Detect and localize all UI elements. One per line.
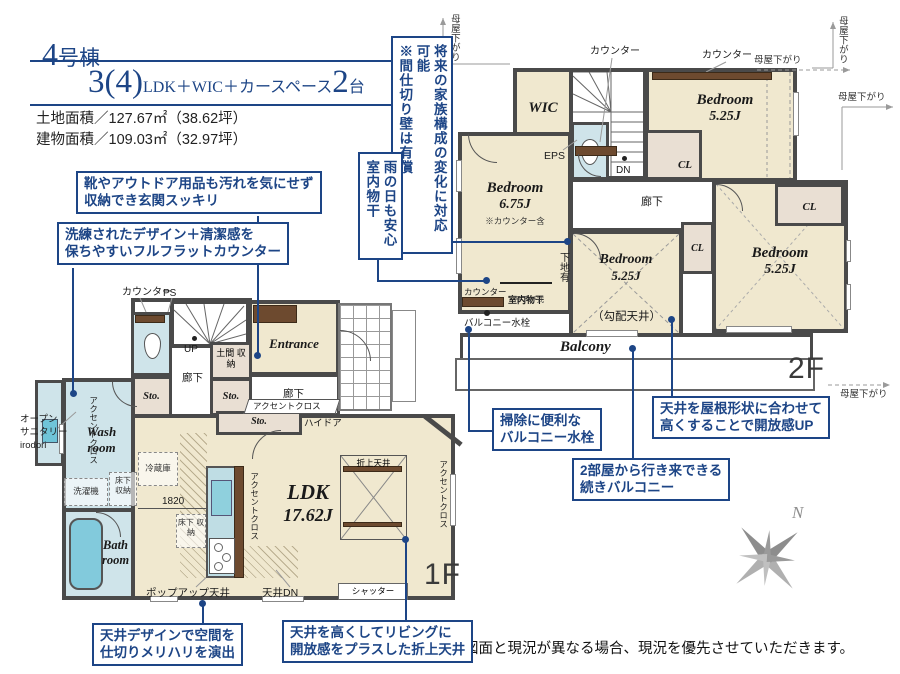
bedroom-w-label: Bedroom 6.75J ※カウンター含 — [462, 180, 568, 227]
sto3-label: Sto. — [219, 416, 299, 427]
fridge-box: 冷蔵庫 — [138, 452, 178, 486]
bedroom-w-name: Bedroom — [462, 180, 568, 197]
bedroom-w-size: 6.75J — [462, 197, 568, 213]
connector-rainy-dot — [483, 277, 490, 284]
floorplan-flyer: 4号棟 3(4)LDK＋WIC＋カースペース2台 土地面積／127.67㎡（38… — [0, 0, 900, 674]
monohoshi-rod — [500, 282, 552, 284]
washer-label: 洗濯機 — [65, 485, 107, 497]
eps-label: EPS — [544, 150, 565, 163]
stove-burner-3 — [214, 562, 223, 571]
connector-highceil — [671, 320, 673, 396]
stove-burner-1 — [214, 543, 223, 552]
bedroom-ne-label: Bedroom 5.25J — [660, 92, 790, 125]
bedroom-mid-label: Bedroom 5.25J — [575, 252, 677, 284]
accent2-label: アクセントクロス — [249, 472, 260, 540]
balcony-door-mid — [586, 330, 638, 337]
up-label: UP — [184, 344, 198, 357]
dim-1820: 1820 — [162, 496, 184, 509]
callout-continuous-balcony: 2部屋から行き来できる 続きバルコニー — [572, 458, 730, 501]
yukashita2-box: 床下 収納 — [176, 514, 206, 548]
counter-1f-toilet — [135, 315, 165, 323]
washer-box: 洗濯機 — [64, 478, 108, 506]
bedroom-w-note: ※カウンター含 — [462, 215, 568, 227]
room-1f-doma: 土間 収納 — [210, 342, 252, 380]
balcony-tap-dot — [484, 310, 490, 316]
connector-balcony2 — [632, 350, 634, 458]
moya-label-right: 母屋下がり — [838, 92, 886, 104]
connector-genkan-dot — [254, 352, 261, 359]
moya-label-tr: 母屋下がり — [836, 16, 848, 64]
room-2f-cl-ne: CL — [645, 130, 702, 180]
kitchen-cabinet — [234, 466, 244, 578]
sto2-label: Sto. — [213, 391, 249, 402]
bath-label: Bath room — [100, 538, 131, 568]
kitchen-stove — [209, 538, 235, 574]
sto1-label: Sto. — [134, 391, 169, 402]
yukashita2-label: 床下 収納 — [177, 518, 205, 537]
callout-rainy-day: 雨の日も安心 室内物干 — [358, 152, 403, 260]
header-divider-bottom — [30, 104, 392, 106]
window-2f-se1 — [846, 240, 851, 262]
stairs-1f-pattern — [174, 304, 246, 344]
connector-tap-h — [468, 430, 492, 432]
hall1-label: 廊下 — [182, 372, 203, 385]
room-2f-cl-se: CL — [775, 184, 844, 226]
connector-tap-dot — [465, 326, 472, 333]
room-2f-cl-mid: CL — [681, 222, 714, 274]
balcony-tap-label: バルコニー水栓 — [464, 318, 530, 330]
hidoor-label: ハイドア — [304, 418, 342, 430]
connector-future-dot — [564, 238, 571, 245]
window-2f-w2 — [456, 238, 462, 274]
ldk-label: LDK 17.62J — [258, 480, 358, 526]
room-1f-stairs — [170, 300, 250, 348]
shoe-cabinet — [253, 305, 297, 323]
building-area: 建物面積／109.03㎡（32.97坪） — [36, 131, 247, 149]
doma-label: 土間 収納 — [213, 348, 249, 370]
up-dot — [192, 336, 197, 341]
plan-num: 3(4) — [88, 64, 143, 100]
building-number: 4 — [42, 36, 58, 72]
callout-genkan-storage: 靴やアウトドア用品も汚れを気にせず 収納でき玄関スッキリ — [76, 171, 322, 214]
plan-type: 3(4)LDK＋WIC＋カースペース2台 — [88, 62, 365, 103]
connector-counter-dot — [70, 390, 77, 397]
counter-2f-bedroom-w — [462, 297, 504, 307]
land-area: 土地面積／127.67㎡（38.62坪） — [36, 110, 247, 128]
bedroom-mid-name: Bedroom — [575, 252, 677, 268]
callout-oriage-ceiling: 天井を高くしてリビングに 開放感をプラスした折上天井 — [282, 620, 473, 663]
yukashita1-box: 床下 収納 — [109, 472, 137, 506]
entrance-label: Entrance — [252, 336, 336, 352]
connector-tap-v — [468, 330, 470, 432]
bedroom-se-label: Bedroom 5.25J — [722, 245, 838, 278]
plan-car-suffix: 台 — [349, 79, 365, 96]
counter-label-1: カウンター — [590, 46, 640, 59]
connector-highceil-dot — [668, 316, 675, 323]
counter-label-2: カウンター — [702, 50, 752, 63]
ceiling-dn-label: 天井DN — [262, 587, 298, 600]
callout-balcony-tap: 掃除に便利な バルコニー水栓 — [492, 408, 602, 451]
shutter-box: シャッター — [338, 583, 408, 600]
window-2f-ne — [793, 92, 799, 136]
room-1f-sto1: Sto. — [131, 376, 172, 418]
dn-dot — [622, 156, 627, 161]
bedroom-se-size: 5.25J — [722, 262, 838, 278]
wic-label: WIC — [517, 100, 569, 117]
balcony-door-se — [726, 326, 792, 333]
accent-strip: アクセントクロス — [244, 399, 341, 414]
callout-flat-counter: 洗練されたデザイン＋清潔感を 保ちやすいフルフラットカウンター — [57, 222, 289, 265]
room-1f-sto3: Sto. — [216, 411, 302, 435]
dn-label: DN — [616, 165, 630, 178]
balcony-label: Balcony — [560, 338, 611, 357]
balcony-rail — [455, 358, 815, 391]
slope-ceiling-label: （勾配天井） — [592, 310, 661, 324]
shitaji-label: 下地有 — [556, 252, 569, 282]
moya-label-top: 母屋下がり — [754, 55, 802, 67]
plan-car-count: 2 — [332, 64, 349, 100]
hall-2f-label: 廊下 — [641, 196, 663, 210]
connector-oriage-dot — [402, 536, 409, 543]
porch-step — [392, 310, 416, 402]
shutter-label: シャッター — [339, 585, 407, 597]
compass-n-letter: N — [791, 503, 805, 522]
fridge-label: 冷蔵庫 — [139, 462, 177, 474]
kitchen-sink — [211, 480, 232, 516]
floor-label-2f: 2F — [788, 352, 825, 386]
compass-rose: N — [722, 496, 817, 601]
ldk-size: 17.62J — [258, 505, 358, 526]
window-2f-se2 — [846, 284, 851, 310]
bedroom-mid-size: 5.25J — [575, 268, 677, 284]
connector-rainy-h — [377, 280, 487, 282]
popup-ceiling-label: ポップアップ天井 — [146, 587, 230, 600]
cl-mid-label: CL — [684, 243, 711, 254]
toilet-1f-icon — [144, 333, 161, 359]
cl-ne-label: CL — [675, 159, 695, 171]
bedroom-se-name: Bedroom — [722, 245, 838, 262]
tsurisage-label: 吊下げ式 — [514, 295, 544, 304]
accent3-label: アクセントクロス — [438, 460, 449, 528]
ldk-name: LDK — [258, 480, 358, 505]
yukashita1-label: 床下 収納 — [110, 476, 136, 495]
counter-2f-bedroom-ne — [652, 72, 772, 80]
connector-oriage — [405, 540, 407, 620]
plan-ldk-text: LDK＋WIC＋カースペース — [143, 79, 332, 96]
callout-ceiling-design: 天井デザインで空間を 仕切りメリハリを演出 — [92, 623, 243, 666]
ceiling-dn-hatch — [240, 546, 298, 578]
wash-label: Wash room — [72, 424, 131, 455]
oriage-label: 折上天井 — [341, 457, 406, 469]
window-1f-right — [450, 474, 456, 526]
disclaimer: 図面と現況が異なる場合、現況を優先させていただきます。 — [464, 640, 854, 658]
ps-label: PS — [163, 288, 176, 301]
accent1-label: アクセントクロス — [253, 401, 321, 412]
stove-burner-2 — [222, 553, 231, 562]
bedroom-ne-name: Bedroom — [660, 92, 790, 109]
sanitary-label: オープン サニタリー irodori — [20, 414, 68, 452]
connector-counter — [72, 268, 74, 394]
connector-popup-dot — [199, 600, 206, 607]
cl-se-label: CL — [778, 201, 841, 213]
callout-high-ceiling: 天井を屋根形状に合わせて 高くすることで開放感UP — [652, 396, 830, 439]
accent4-label: アクセントクロス — [88, 396, 99, 464]
moya-label-br: 母屋下がり — [840, 389, 888, 401]
bedroom-ne-size: 5.25J — [660, 109, 790, 125]
connector-balcony2-dot — [629, 345, 636, 352]
dim-line — [138, 508, 206, 509]
floor-label-1f: 1F — [424, 558, 461, 592]
connector-future — [441, 241, 568, 243]
